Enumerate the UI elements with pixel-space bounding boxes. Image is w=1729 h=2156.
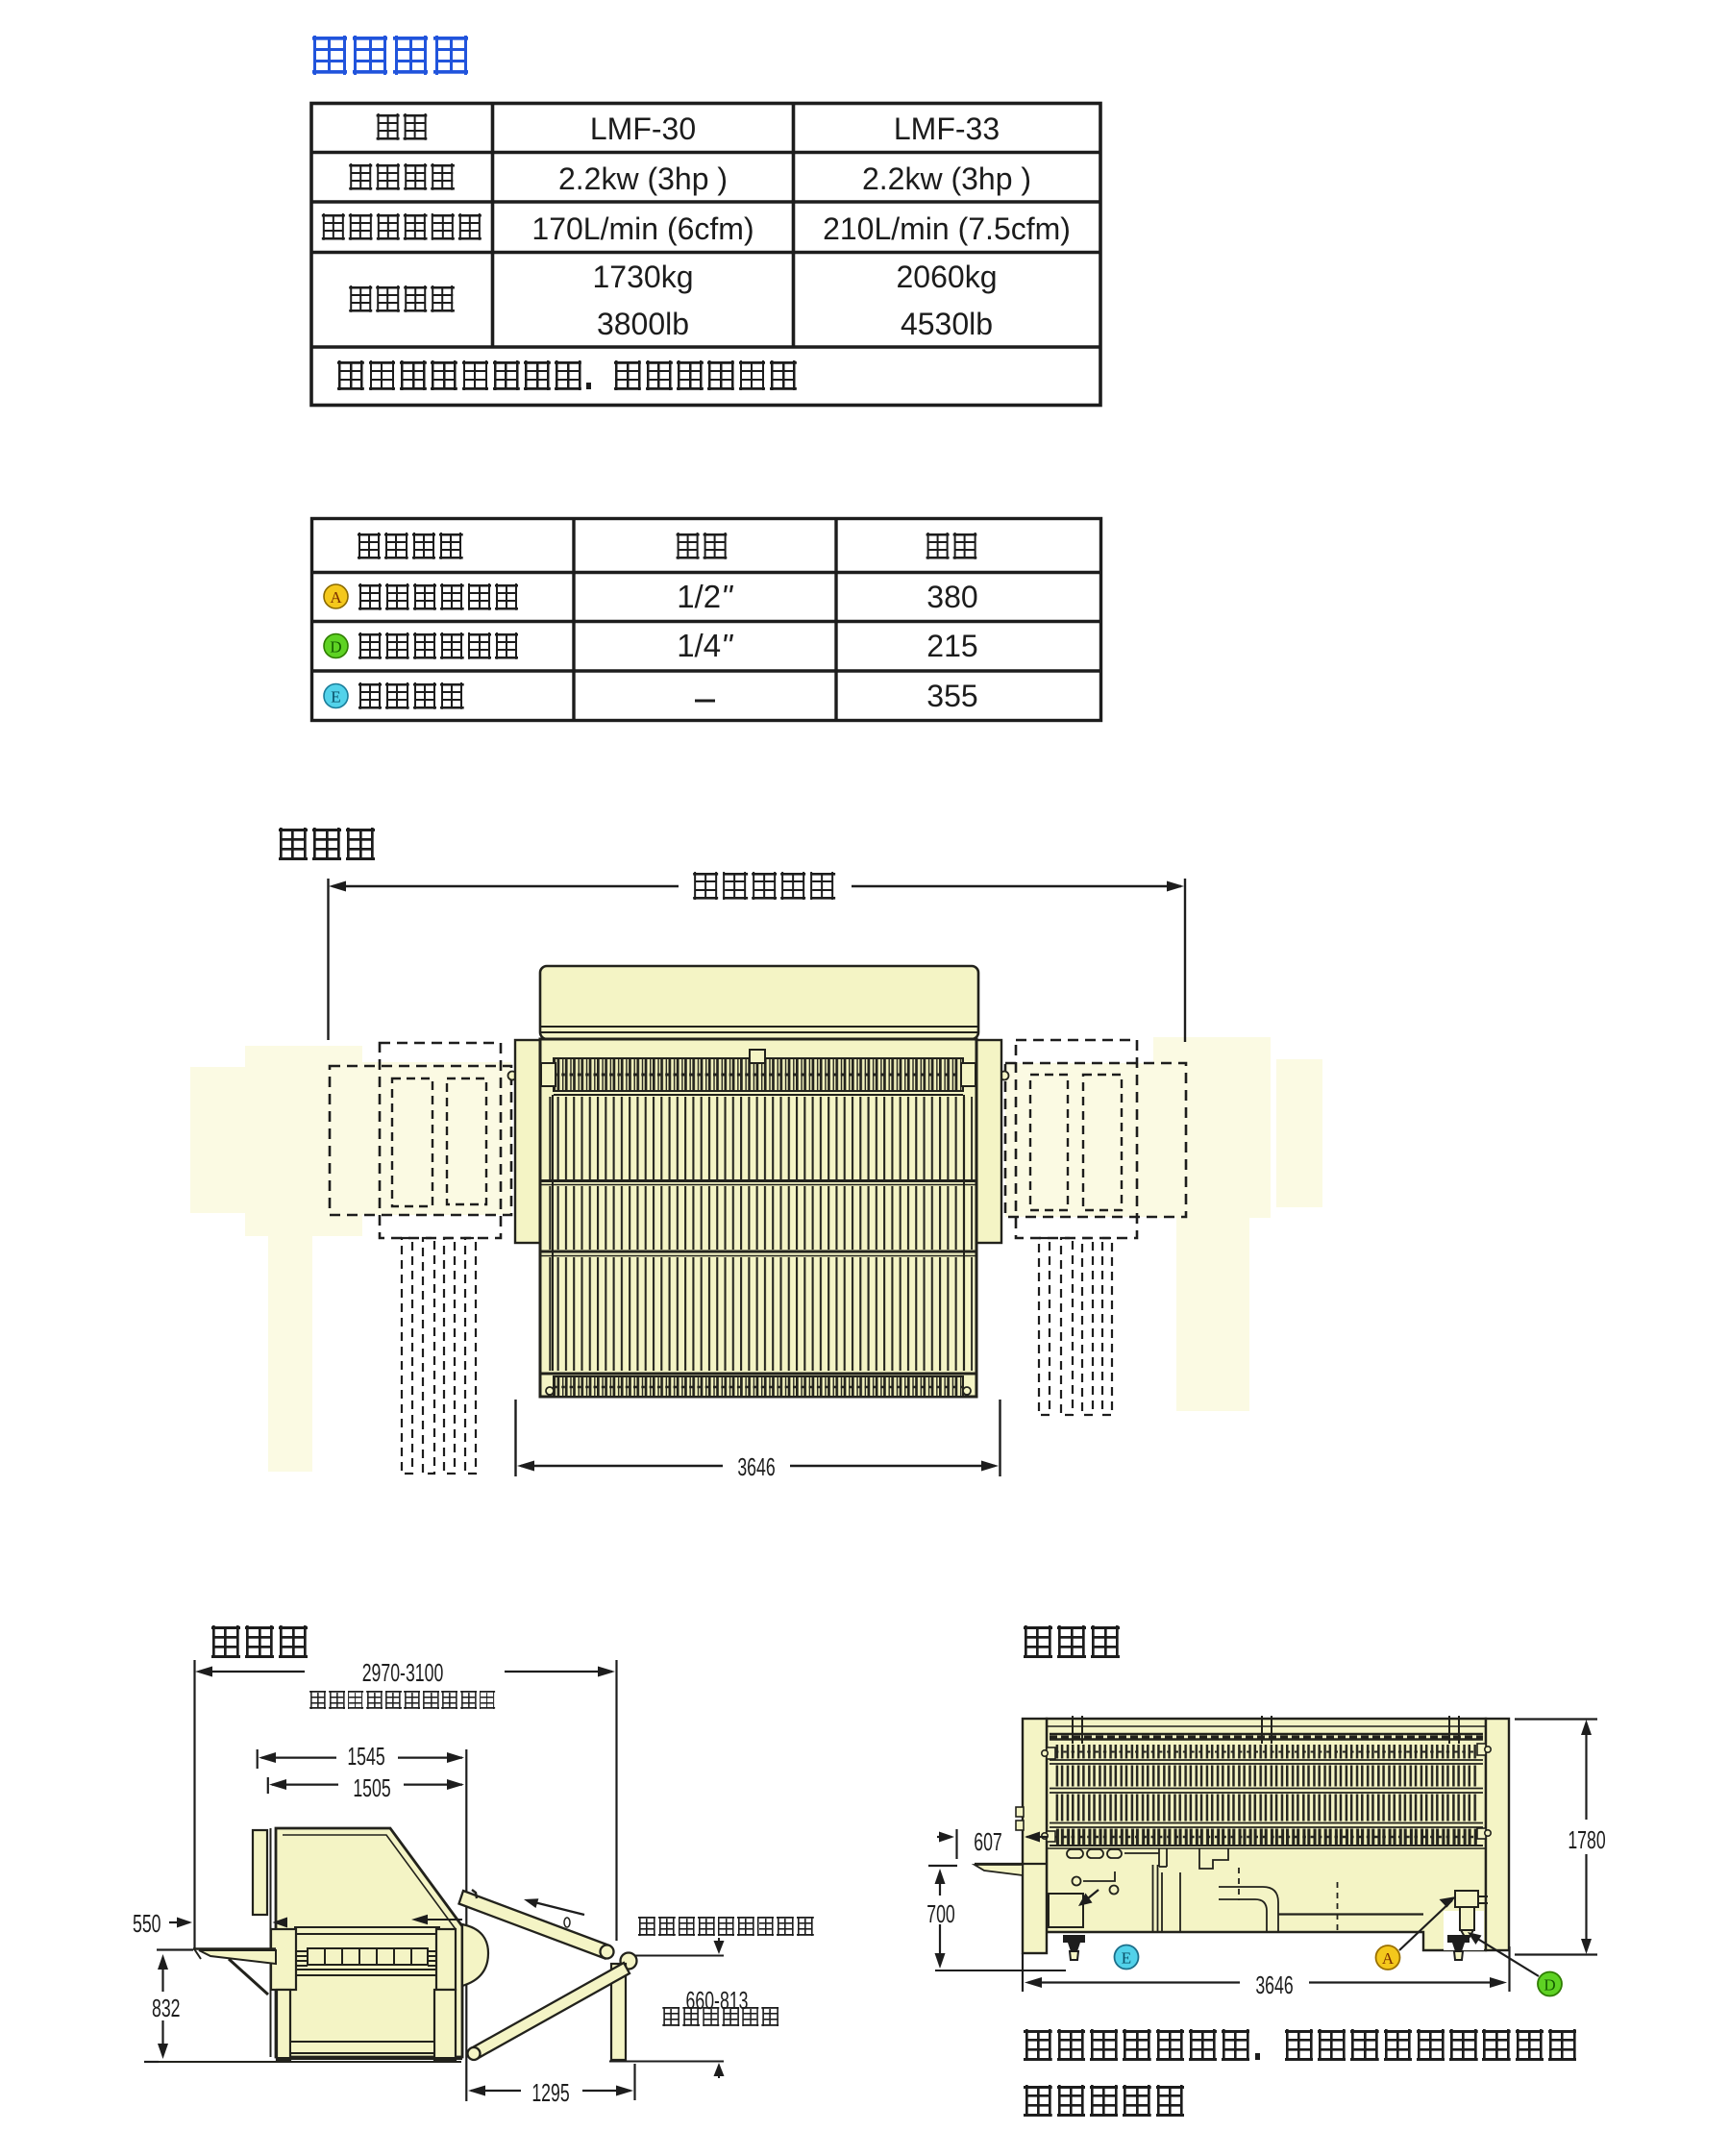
svg-text:E: E xyxy=(1122,1949,1131,1968)
svg-text:A: A xyxy=(330,588,342,607)
svg-text:D: D xyxy=(1544,1976,1555,1995)
svg-text:A: A xyxy=(1382,1949,1395,1968)
svg-text:D: D xyxy=(330,638,341,657)
svg-text:E: E xyxy=(331,688,340,706)
